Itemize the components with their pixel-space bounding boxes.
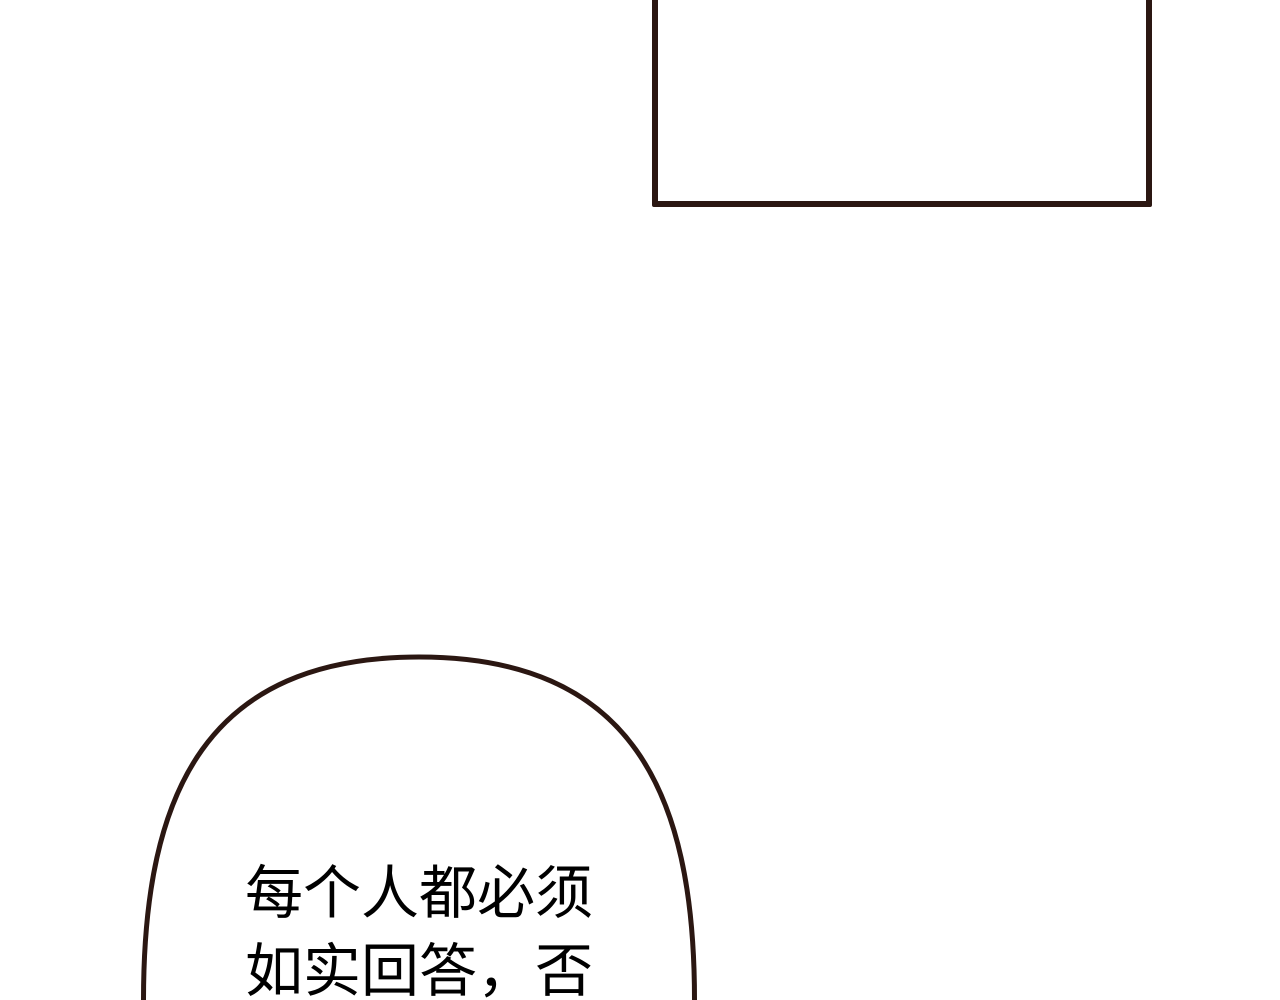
- dialogue-line-2: 如实回答，否: [142, 932, 696, 1000]
- comic-page: 每个人都必须 如实回答，否: [0, 0, 1280, 1000]
- speech-bubble: [0, 0, 1280, 1000]
- dialogue-line-1: 每个人都必须: [142, 854, 696, 932]
- speech-bubble-text: 每个人都必须 如实回答，否: [142, 854, 696, 1000]
